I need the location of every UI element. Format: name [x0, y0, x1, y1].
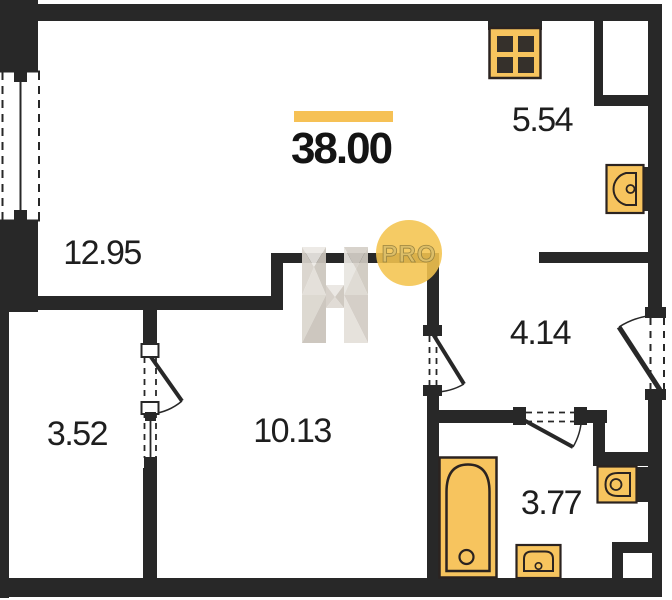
- bathroom-sink-icon: [517, 545, 561, 578]
- room-area-bedroom: 10.13: [253, 414, 331, 448]
- floorplan: PRO 38.00 12.95 5.54 4.14 3.52 10.13 3.7…: [0, 0, 672, 600]
- room-area-loggia: 3.52: [47, 417, 107, 451]
- room-area-hallway: 4.14: [510, 316, 570, 350]
- room-area-living: 12.95: [63, 236, 141, 270]
- room-area-bathroom: 3.77: [521, 486, 581, 520]
- bathtub-icon: [440, 458, 497, 578]
- toilet-icon: [598, 467, 653, 503]
- kitchen-sink-icon: [607, 165, 652, 213]
- door-bathroom: [520, 413, 582, 448]
- vent-niche: [623, 553, 652, 578]
- stove-icon: [488, 20, 542, 78]
- room-area-kitchen: 5.54: [512, 103, 572, 137]
- watermark-pro-badge: PRO: [376, 220, 442, 286]
- entrance-door: [619, 315, 664, 390]
- total-area-label: 38.00: [291, 127, 391, 171]
- window-left: [0, 72, 40, 222]
- watermark-pro-text: PRO: [381, 241, 436, 268]
- total-area-accent-bar: [294, 111, 393, 122]
- loggia-door-window: [142, 344, 183, 469]
- door-bedroom-hallway: [430, 334, 465, 392]
